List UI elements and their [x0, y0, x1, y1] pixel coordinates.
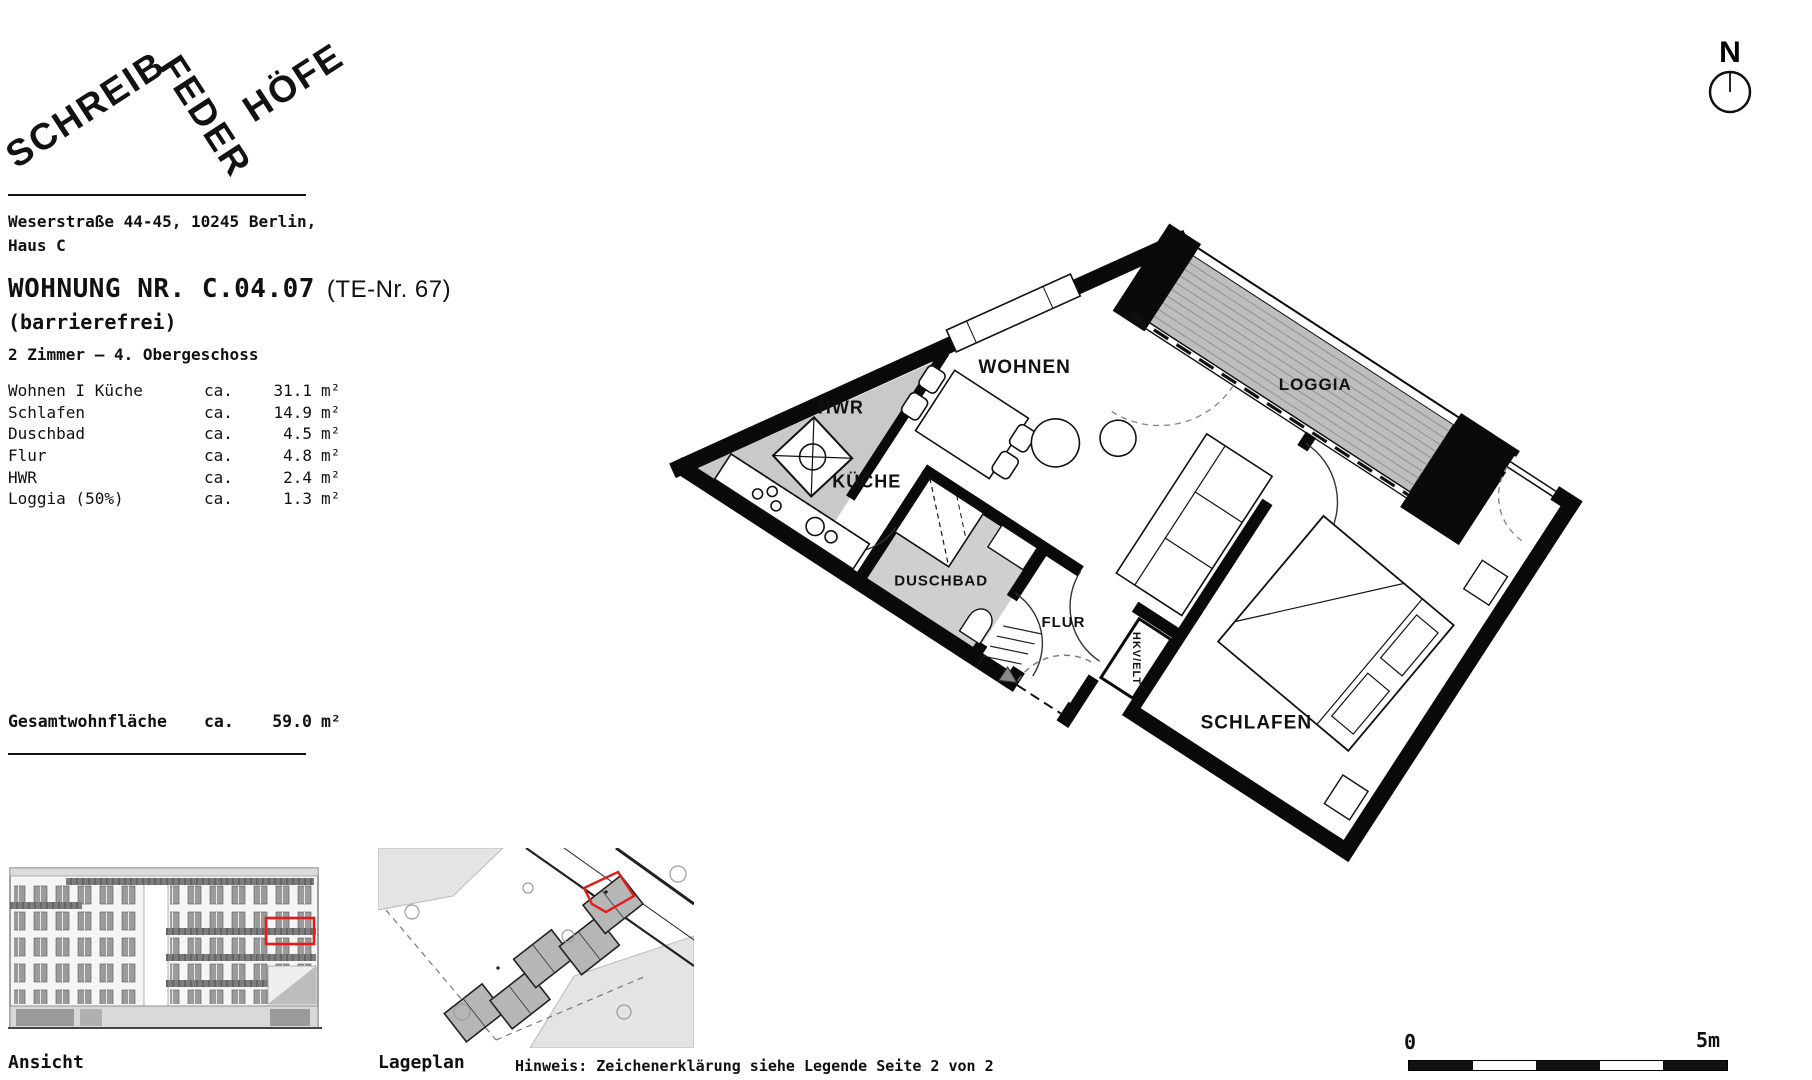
room-name: Flur	[8, 446, 204, 465]
window-grid	[14, 882, 142, 1004]
apartment-title: WOHNUNG NR. C.04.07	[8, 274, 315, 304]
ca-label: ca.	[204, 446, 256, 465]
coffee-table	[1022, 410, 1088, 476]
survey-dot	[604, 890, 607, 893]
floor-plan: HKV/ELT	[560, 170, 1720, 900]
storefront	[16, 1009, 74, 1026]
scalebar	[1408, 1060, 1728, 1071]
table-row: Schlafenca.14.9m²	[8, 403, 340, 425]
total-value: 59.0	[256, 712, 312, 731]
site-plan-drawing	[378, 848, 694, 1048]
page-title-row: WOHNUNG NR. C.04.07(TE-Nr. 67)	[8, 274, 451, 304]
balcony-railing	[166, 928, 316, 935]
room-label-hwr: HWR	[818, 397, 864, 417]
room-area-value: 31.1	[256, 381, 312, 400]
balcony-railing	[166, 954, 316, 961]
room-label-schlafen: SCHLAFEN	[1201, 712, 1312, 733]
ca-label: ca.	[204, 489, 256, 508]
total-label: Gesamtwohnfläche	[8, 712, 204, 731]
room-name: Duschbad	[8, 424, 204, 443]
te-number: (TE-Nr. 67)	[327, 276, 451, 303]
area-unit: m²	[321, 468, 340, 487]
barrier-free-note: (barrierefrei)	[8, 310, 177, 334]
ansicht-caption: Ansicht	[8, 1052, 84, 1073]
room-area-value: 2.4	[256, 468, 312, 487]
room-name: HWR	[8, 468, 204, 487]
logo-word-schreib: SCHREIB	[0, 43, 173, 177]
area-unit: m²	[321, 381, 340, 400]
elevation-drawing	[8, 856, 322, 1042]
scalebar-segment	[1536, 1061, 1600, 1070]
area-unit: m²	[321, 712, 341, 731]
scalebar-segment	[1473, 1061, 1537, 1070]
divider-top	[8, 194, 306, 196]
table-row: Duschbadca.4.5m²	[8, 424, 340, 446]
lageplan-caption: Lageplan	[378, 1052, 465, 1073]
room-label-wohnen: WOHNEN	[978, 357, 1071, 378]
room-area-value: 14.9	[256, 403, 312, 422]
room-label-flur: FLUR	[1041, 614, 1085, 631]
table-row: Flurca.4.8m²	[8, 446, 340, 468]
room-area-value: 1.3	[256, 489, 312, 508]
floor-info: 2 Zimmer — 4. Obergeschoss	[8, 345, 258, 364]
room-label-hkv: HKV/ELT	[1130, 632, 1142, 685]
ca-label: ca.	[204, 381, 256, 400]
area-unit: m²	[321, 424, 340, 443]
scalebar-segment	[1600, 1061, 1664, 1070]
room-area-value: 4.8	[256, 446, 312, 465]
ca-label: ca.	[204, 424, 256, 443]
room-area-value: 4.5	[256, 424, 312, 443]
address: Weserstraße 44-45, 10245 Berlin,Haus C	[8, 210, 316, 258]
logo-word-hoefe: HÖFE	[236, 35, 352, 131]
area-unit: m²	[321, 403, 340, 422]
area-unit: m²	[321, 446, 340, 465]
balcony-railing	[66, 878, 314, 885]
table-row: Wohnen I Kücheca.31.1m²	[8, 381, 340, 403]
total-area-row: Gesamtwohnflächeca.59.0m²	[8, 712, 341, 731]
legend-note: Hinweis: Zeichenerklärung siehe Legende …	[515, 1057, 994, 1075]
coffee-table	[1093, 413, 1143, 463]
neighbor-parcel	[378, 848, 503, 910]
ca-label: ca.	[204, 468, 256, 487]
room-label-duschbad: DUSCHBAD	[894, 573, 988, 590]
scalebar-end-label: 5m	[1696, 1028, 1720, 1052]
scalebar-segment	[1663, 1061, 1727, 1070]
room-name: Wohnen I Küche	[8, 381, 204, 400]
survey-dot	[496, 966, 499, 969]
address-line2: Haus C	[8, 236, 66, 255]
north-arrow: N	[1700, 34, 1760, 118]
ca-label: ca.	[204, 712, 256, 731]
logo-word-feder: FEDER	[151, 48, 260, 184]
area-unit: m²	[321, 489, 340, 508]
room-label-loggia: LOGGIA	[1279, 375, 1352, 394]
table-row: Loggia (50%)ca.1.3m²	[8, 489, 340, 511]
room-label-kueche: KÜCHE	[832, 471, 901, 491]
scalebar-start-label: 0	[1404, 1030, 1416, 1054]
scalebar-segment	[1409, 1061, 1473, 1070]
room-area-table: Wohnen I Kücheca.31.1m² Schlafenca.14.9m…	[8, 381, 340, 511]
sideboard	[946, 274, 1080, 352]
room-name: Schlafen	[8, 403, 204, 422]
north-label: N	[1719, 36, 1741, 69]
storefront	[270, 1009, 310, 1026]
address-line1: Weserstraße 44-45, 10245 Berlin,	[8, 212, 316, 231]
balcony-railing	[10, 902, 82, 909]
room-name: Loggia (50%)	[8, 489, 204, 508]
parapet	[10, 868, 318, 876]
divider-bottom	[8, 753, 306, 755]
ca-label: ca.	[204, 403, 256, 422]
table-row: HWRca.2.4m²	[8, 468, 340, 490]
storefront	[80, 1009, 102, 1026]
